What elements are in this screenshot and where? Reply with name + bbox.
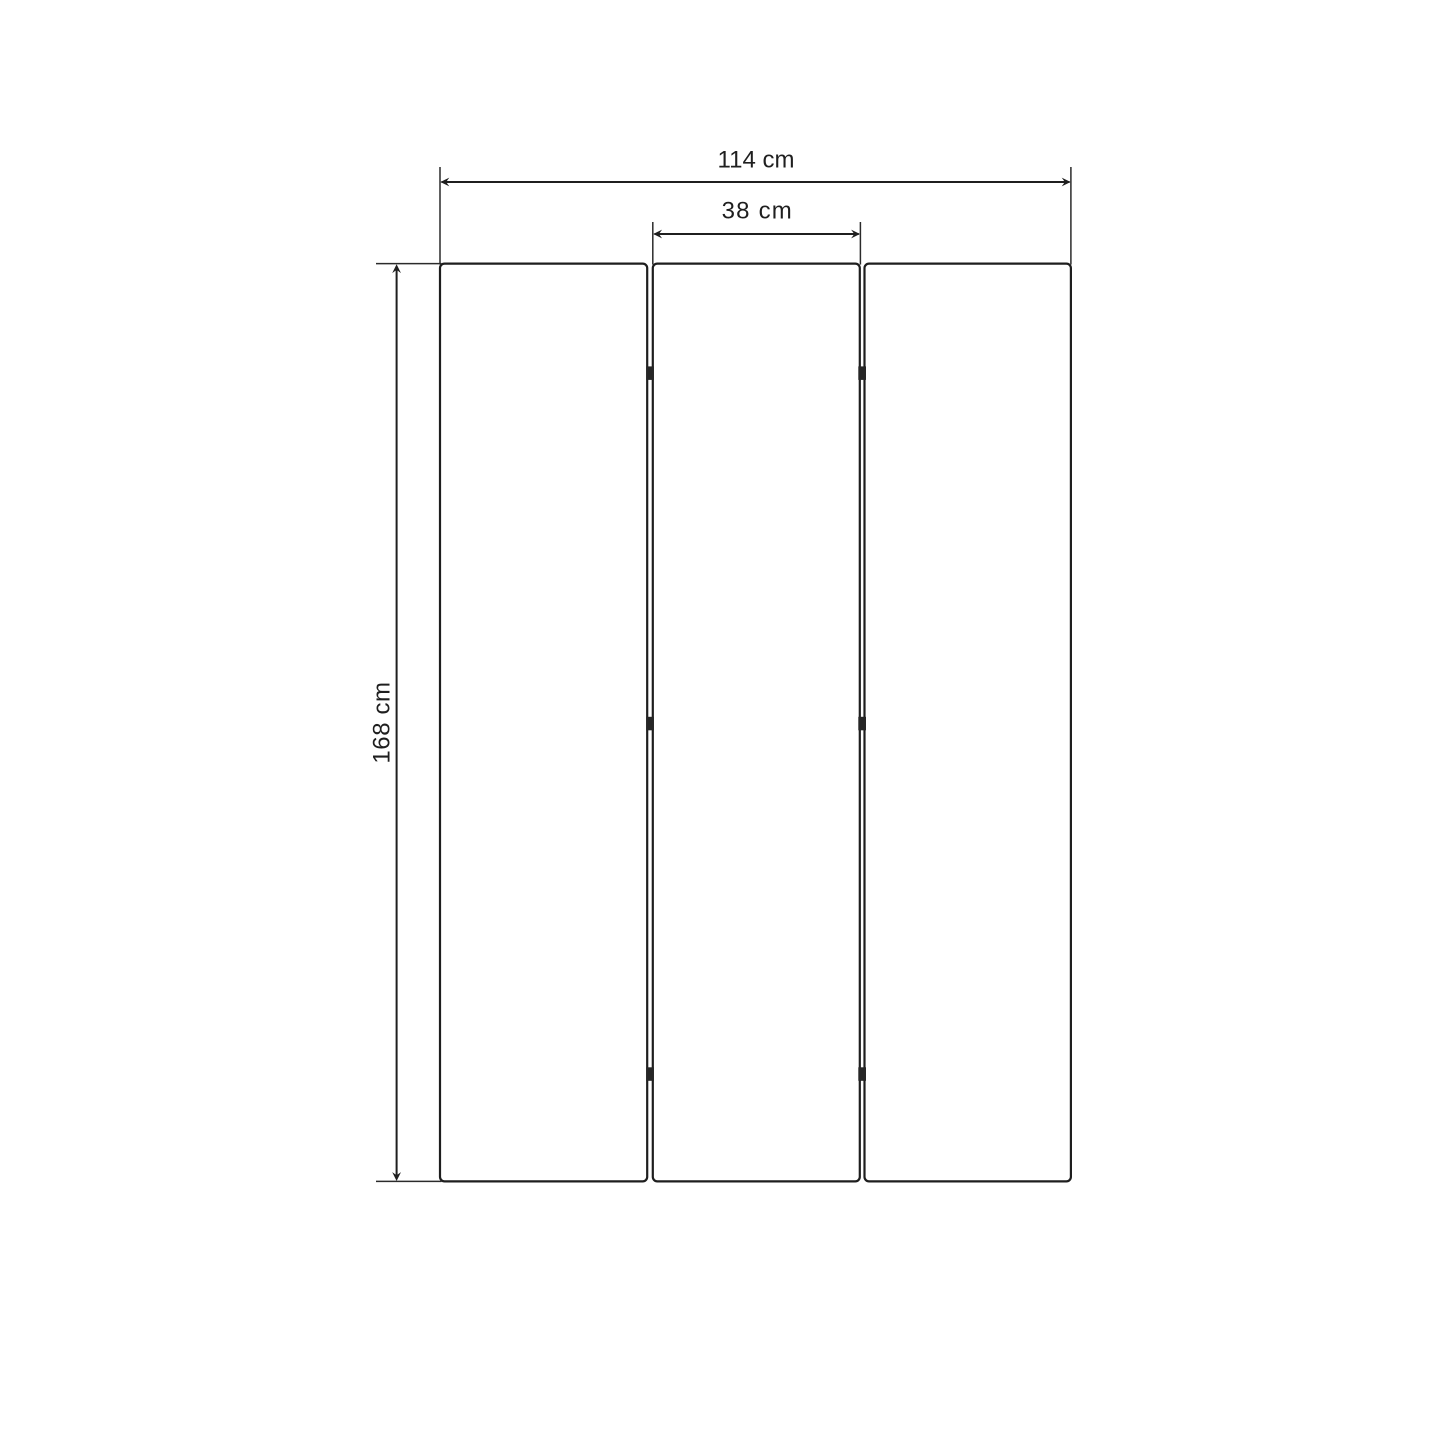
svg-text:168 cm: 168 cm	[369, 681, 396, 763]
svg-text:114 cm: 114 cm	[718, 147, 795, 174]
svg-text:38 cm: 38 cm	[722, 198, 793, 225]
